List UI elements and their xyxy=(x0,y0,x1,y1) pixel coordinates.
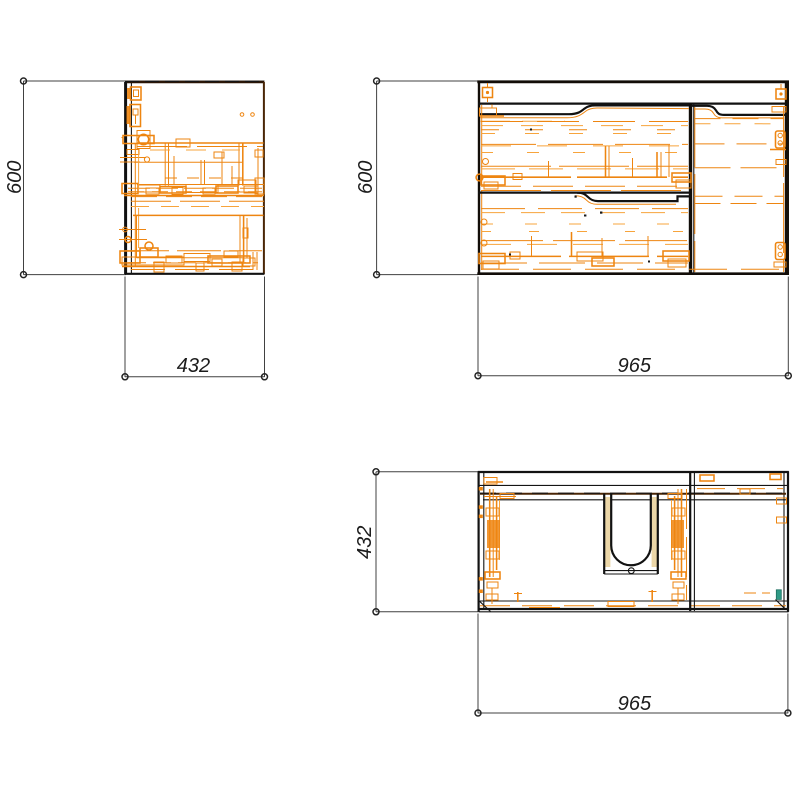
svg-text:600: 600 xyxy=(355,161,377,194)
svg-text:965: 965 xyxy=(618,355,652,377)
svg-text:600: 600 xyxy=(4,161,26,194)
svg-text:432: 432 xyxy=(354,526,376,559)
svg-text:965: 965 xyxy=(618,693,652,715)
svg-text:432: 432 xyxy=(177,355,210,377)
